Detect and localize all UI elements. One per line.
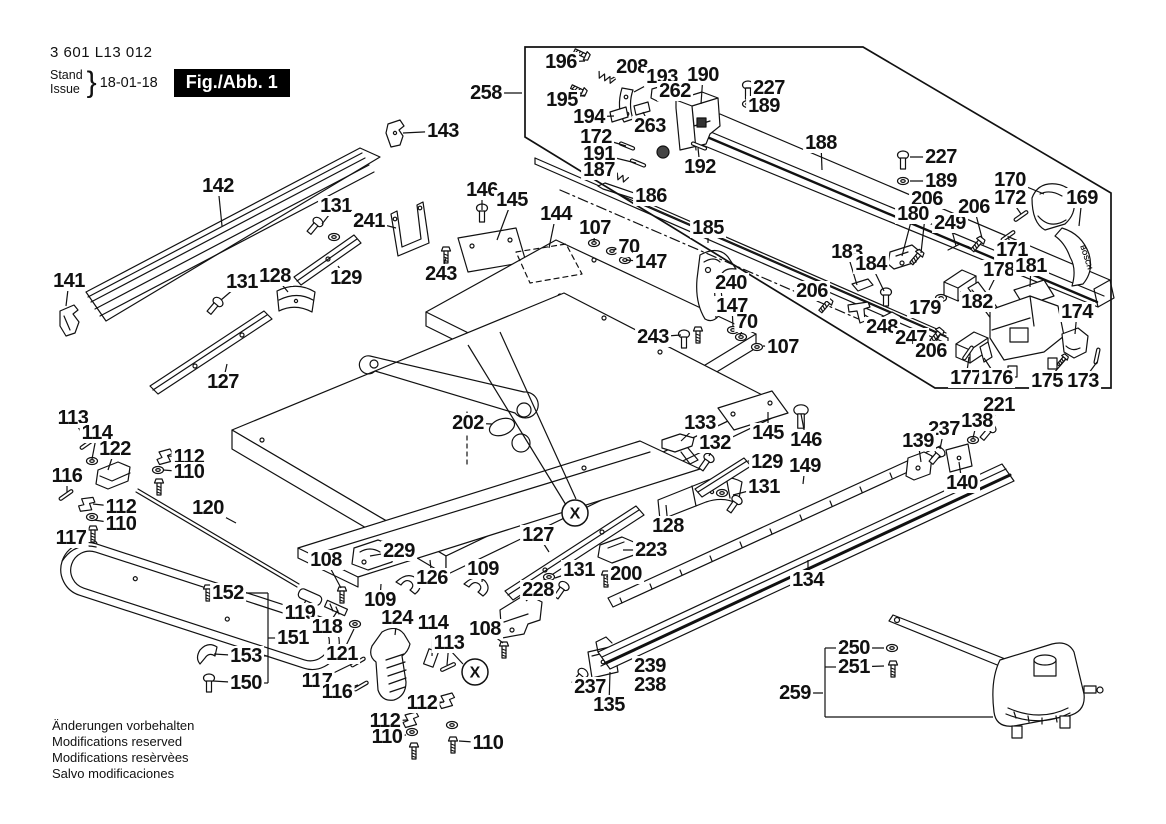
part-label-143: 143 (425, 121, 461, 141)
part-label-139: 139 (900, 431, 936, 451)
footer-note-line: Modifications resèrvèes (52, 750, 194, 766)
part-label-227: 227 (923, 147, 959, 167)
part-label-146: 146 (788, 430, 824, 450)
part-label-240: 240 (713, 273, 749, 293)
part-label-110: 110 (471, 733, 506, 753)
part-label-131: 131 (561, 560, 597, 580)
part-label-133: 133 (682, 413, 718, 433)
part-label-189: 189 (746, 96, 782, 116)
part-label-118: 118 (310, 617, 345, 637)
part-label-117: 117 (54, 528, 89, 548)
part-label-186: 186 (633, 186, 669, 206)
part-label-176: 176 (979, 368, 1015, 388)
part-label-107: 107 (765, 337, 801, 357)
part-label-150: 150 (228, 673, 264, 693)
part-label-112: 112 (405, 693, 440, 713)
stand-label: Stand (50, 69, 83, 83)
part-label-194: 194 (571, 107, 607, 127)
part-label-108: 108 (467, 619, 503, 639)
part-label-202: 202 (450, 413, 486, 433)
part-label-127: 127 (205, 372, 241, 392)
footer-note-line: Salvo modificaciones (52, 766, 194, 782)
part-label-228: 228 (520, 580, 556, 600)
parts-diagram-page: XXBOSCH 14314213124114614514410770147258… (0, 0, 1166, 824)
part-label-239: 239 (632, 656, 668, 676)
part-label-135: 135 (591, 695, 627, 715)
title-block: 3 601 L13 012 Stand Issue } 18-01-18 Fig… (50, 44, 290, 97)
part-label-172: 172 (992, 188, 1028, 208)
part-label-70: 70 (734, 312, 759, 332)
part-label-128: 128 (257, 266, 293, 286)
issue-date: 18-01-18 (100, 75, 158, 91)
part-label-129: 129 (328, 268, 364, 288)
footer-notes: Änderungen vorbehaltenModifications rese… (52, 718, 194, 782)
part-label-169: 169 (1064, 188, 1100, 208)
part-label-243: 243 (635, 327, 671, 347)
part-label-206: 206 (913, 341, 949, 361)
part-label-122: 122 (97, 439, 133, 459)
document-part-number: 3 601 L13 012 (50, 44, 290, 61)
part-label-109: 109 (465, 559, 501, 579)
part-label-140: 140 (944, 473, 980, 493)
part-label-178: 178 (981, 260, 1017, 280)
part-label-114: 114 (416, 613, 451, 633)
part-label-238: 238 (632, 675, 668, 695)
part-label-149: 149 (787, 456, 823, 476)
part-label-110: 110 (104, 514, 139, 534)
part-label-145: 145 (750, 423, 786, 443)
part-label-116: 116 (320, 682, 355, 702)
part-label-110: 110 (172, 462, 207, 482)
part-label-223: 223 (633, 540, 669, 560)
part-label-175: 175 (1029, 371, 1065, 391)
part-label-113: 113 (432, 633, 467, 653)
part-label-145: 145 (494, 190, 530, 210)
part-label-126: 126 (414, 568, 450, 588)
part-label-141: 141 (51, 271, 87, 291)
labels-layer: 1431421312411461451441077014725819620819… (0, 0, 1166, 824)
part-label-188: 188 (803, 133, 839, 153)
part-label-243: 243 (423, 264, 459, 284)
part-label-182: 182 (959, 292, 995, 312)
part-label-241: 241 (351, 211, 387, 231)
part-label-206: 206 (794, 281, 830, 301)
part-label-129: 129 (749, 452, 785, 472)
part-label-144: 144 (538, 204, 574, 224)
part-label-192: 192 (682, 157, 718, 177)
part-label-108: 108 (308, 550, 344, 570)
part-label-259: 259 (777, 683, 813, 703)
part-label-200: 200 (608, 564, 644, 584)
part-label-185: 185 (690, 218, 726, 238)
part-label-196: 196 (543, 52, 579, 72)
part-label-138: 138 (959, 411, 995, 431)
footer-note-line: Modifications reserved (52, 734, 194, 750)
part-label-173: 173 (1065, 371, 1101, 391)
part-label-206: 206 (956, 197, 992, 217)
part-label-153: 153 (228, 646, 264, 666)
part-label-116: 116 (50, 466, 85, 486)
part-label-187: 187 (581, 160, 617, 180)
part-label-250: 250 (836, 638, 872, 658)
part-label-131: 131 (318, 196, 354, 216)
part-label-147: 147 (633, 252, 669, 272)
part-label-132: 132 (697, 433, 733, 453)
part-label-134: 134 (790, 570, 826, 590)
figure-label: Fig./Abb. 1 (174, 69, 290, 97)
part-label-152: 152 (210, 583, 246, 603)
part-label-237: 237 (572, 677, 608, 697)
brace-glyph: } (87, 71, 97, 95)
part-label-180: 180 (895, 204, 931, 224)
part-label-110: 110 (370, 727, 405, 747)
part-label-184: 184 (853, 254, 889, 274)
part-label-262: 262 (657, 81, 693, 101)
part-label-142: 142 (200, 176, 236, 196)
part-label-263: 263 (632, 116, 668, 136)
part-label-120: 120 (190, 498, 226, 518)
part-label-127: 127 (520, 525, 556, 545)
part-label-179: 179 (907, 298, 943, 318)
footer-note-line: Änderungen vorbehalten (52, 718, 194, 734)
part-label-131: 131 (746, 477, 782, 497)
part-label-258: 258 (468, 83, 504, 103)
part-label-251: 251 (836, 657, 872, 677)
part-label-151: 151 (275, 628, 311, 648)
part-label-131: 131 (224, 272, 260, 292)
part-label-128: 128 (650, 516, 686, 536)
part-label-174: 174 (1059, 302, 1095, 322)
issue-label: Issue (50, 83, 83, 97)
part-label-121: 121 (324, 644, 360, 664)
part-label-181: 181 (1013, 256, 1049, 276)
part-label-229: 229 (381, 541, 417, 561)
part-label-107: 107 (577, 218, 613, 238)
part-label-124: 124 (379, 608, 415, 628)
